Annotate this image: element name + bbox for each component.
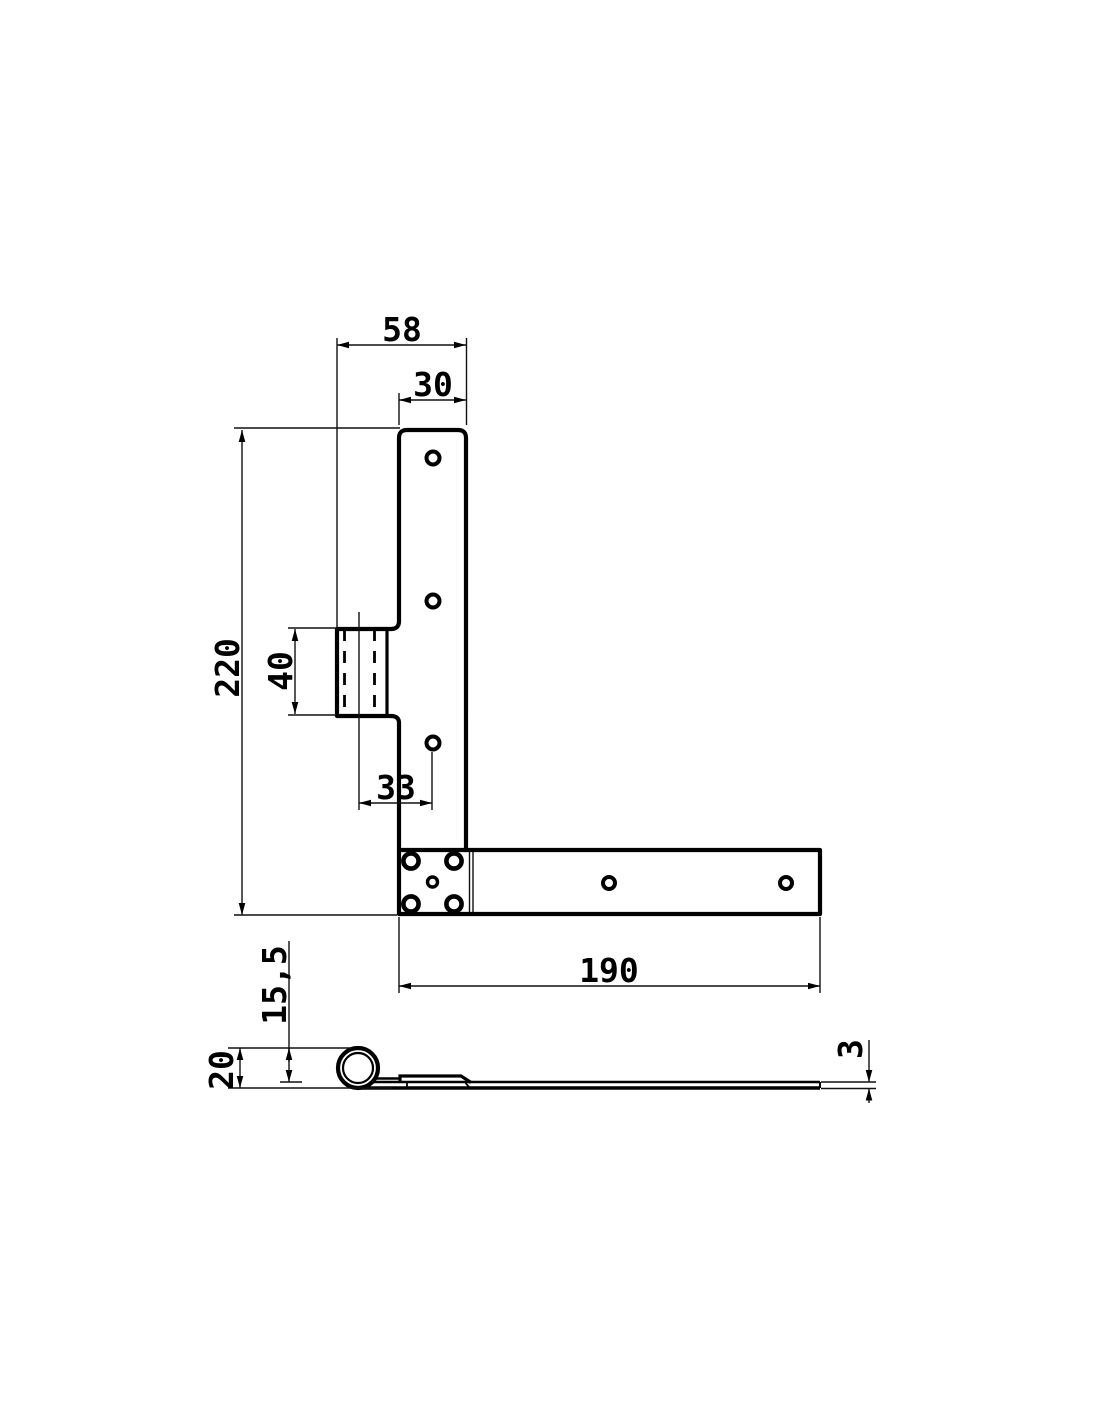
screw-hole xyxy=(780,877,792,889)
screw-hole-center xyxy=(428,877,438,887)
screw-hole xyxy=(427,452,440,465)
screw-hole xyxy=(446,896,461,911)
dim-220-label: 220 xyxy=(208,638,247,698)
screw-hole xyxy=(446,853,461,868)
corner-plate-screw-holes xyxy=(403,853,461,911)
front-view xyxy=(337,430,820,914)
dim-3-label: 3 xyxy=(831,1039,870,1059)
technical-drawing-page: 58 30 220 40 33 190 xyxy=(0,0,1100,1422)
screw-hole xyxy=(603,877,615,889)
dim-33-label: 33 xyxy=(376,768,416,807)
dim-30-label: 30 xyxy=(413,365,453,404)
side-view xyxy=(338,1048,820,1088)
screw-hole xyxy=(403,896,418,911)
knuckle-roll-inner xyxy=(343,1053,373,1083)
side-view-dimensions: 20 15,5 3 xyxy=(202,941,876,1103)
dim-190-label: 190 xyxy=(579,951,639,990)
dim-15-5-label: 15,5 xyxy=(255,945,294,1024)
screw-hole xyxy=(403,853,418,868)
dim-58-label: 58 xyxy=(382,310,422,349)
corner-hinge-drawing: 58 30 220 40 33 190 xyxy=(0,0,1100,1422)
front-view-dimensions: 58 30 220 40 33 190 xyxy=(208,310,820,993)
dim-20-label: 20 xyxy=(202,1050,241,1090)
screw-hole xyxy=(427,595,440,608)
plate-screw-holes xyxy=(427,452,440,750)
dim-40-label: 40 xyxy=(261,651,300,691)
strap-screw-holes xyxy=(603,877,792,889)
screw-hole xyxy=(427,737,440,750)
